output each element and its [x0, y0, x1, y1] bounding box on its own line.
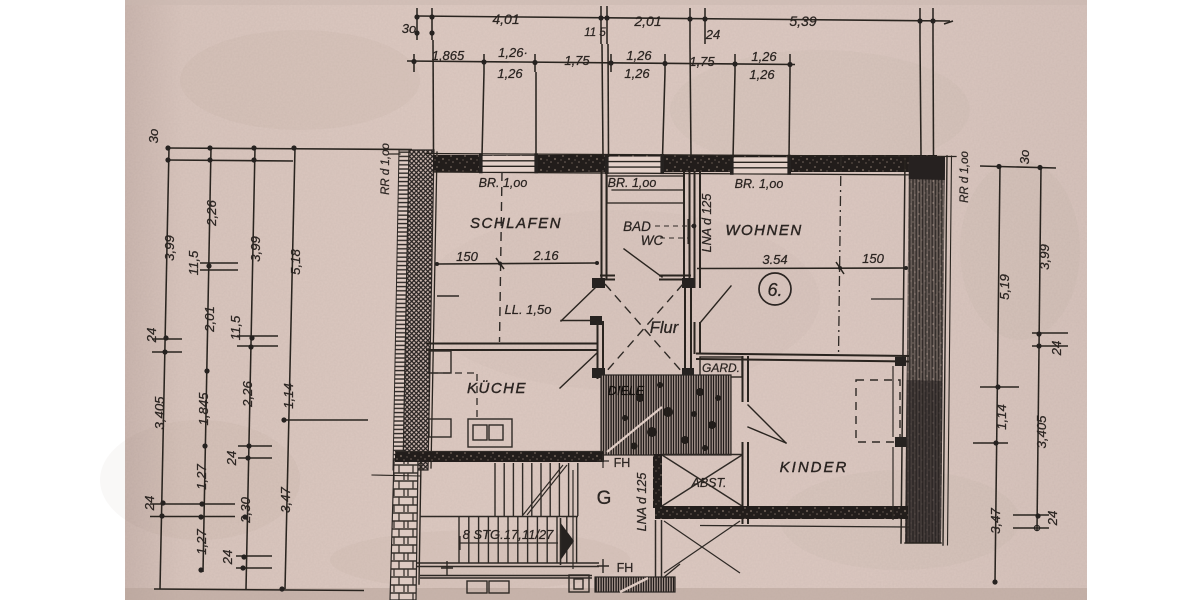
svg-text:4,01: 4,01: [492, 11, 519, 27]
svg-text:Flur: Flur: [650, 319, 680, 337]
svg-text:1,75: 1,75: [689, 54, 715, 69]
svg-text:11,5: 11,5: [228, 315, 243, 340]
svg-text:3o: 3o: [146, 129, 161, 144]
svg-text:3,47: 3,47: [278, 487, 293, 513]
svg-text:1,26: 1,26: [624, 66, 650, 81]
svg-text:FH: FH: [614, 456, 631, 470]
svg-text:1,26: 1,26: [626, 48, 652, 63]
svg-text:24: 24: [144, 328, 159, 344]
svg-text:3,405: 3,405: [1034, 415, 1049, 449]
svg-text:24: 24: [1045, 511, 1060, 527]
svg-text:5,19: 5,19: [997, 274, 1012, 300]
svg-text:1,26: 1,26: [751, 49, 777, 64]
svg-text:1,14: 1,14: [281, 383, 296, 409]
svg-text:5,39: 5,39: [789, 13, 816, 29]
svg-text:LL. 1,5o: LL. 1,5o: [505, 302, 552, 317]
svg-text:LNA d 125: LNA d 125: [635, 473, 649, 532]
svg-text:6.: 6.: [767, 280, 782, 300]
svg-text:1,26: 1,26: [749, 67, 775, 82]
svg-text:1,14: 1,14: [994, 404, 1009, 430]
svg-text:1,865: 1,865: [432, 48, 465, 63]
svg-text:RR d 1,oo: RR d 1,oo: [380, 143, 392, 195]
svg-text:3.54: 3.54: [762, 252, 787, 267]
svg-text:11 5: 11 5: [584, 27, 606, 39]
svg-text:2,26: 2,26: [240, 381, 255, 408]
svg-text:1,26: 1,26: [497, 66, 523, 81]
svg-text:3,405: 3,405: [152, 396, 167, 430]
svg-text:G: G: [597, 488, 612, 509]
svg-text:1,75: 1,75: [564, 53, 590, 68]
svg-text:24: 24: [224, 451, 239, 467]
svg-text:3,99: 3,99: [248, 236, 263, 262]
svg-text:KÜCHE: KÜCHE: [467, 379, 527, 397]
svg-text:5,18: 5,18: [288, 249, 303, 275]
svg-text:ABST.: ABST.: [691, 476, 727, 490]
svg-text:3,99: 3,99: [1037, 244, 1052, 270]
svg-text:2,26: 2,26: [204, 200, 219, 227]
svg-text:1,27: 1,27: [194, 529, 209, 555]
svg-text:FH: FH: [617, 561, 634, 575]
svg-text:3o: 3o: [1017, 150, 1032, 165]
svg-text:24: 24: [220, 550, 235, 566]
svg-text:3,99: 3,99: [162, 235, 177, 261]
svg-text:KINDER: KINDER: [780, 459, 849, 476]
svg-text:1,26·: 1,26·: [498, 45, 528, 60]
svg-text:RR d 1,oo: RR d 1,oo: [959, 151, 971, 203]
svg-text:BR. 1,oo: BR. 1,oo: [735, 177, 784, 191]
svg-text:2,01: 2,01: [202, 306, 217, 333]
svg-text:24: 24: [1049, 341, 1064, 357]
svg-text:DIELE: DIELE: [608, 384, 645, 398]
svg-text:GARD.: GARD.: [702, 361, 740, 375]
svg-text:150: 150: [456, 249, 478, 264]
svg-text:1,27: 1,27: [194, 464, 209, 490]
svg-text:150: 150: [862, 251, 884, 266]
svg-text:LNA d 125: LNA d 125: [700, 194, 714, 253]
svg-text:3o: 3o: [402, 21, 416, 36]
svg-text:8 STG.17,11/27: 8 STG.17,11/27: [463, 527, 555, 542]
svg-text:BR. 1,oo: BR. 1,oo: [479, 176, 528, 190]
svg-text:BAD: BAD: [623, 219, 651, 234]
svg-text:SCHLAFEN: SCHLAFEN: [470, 215, 562, 232]
svg-text:2,30: 2,30: [238, 497, 253, 524]
svg-text:11,5: 11,5: [186, 250, 201, 275]
svg-text:1,845: 1,845: [196, 392, 211, 426]
svg-text:3,47: 3,47: [988, 508, 1003, 534]
svg-text:2.16: 2.16: [532, 248, 559, 263]
svg-text:24: 24: [705, 27, 720, 42]
svg-text:2,01: 2,01: [633, 13, 661, 29]
svg-text:BR. 1,oo: BR. 1,oo: [608, 176, 657, 190]
svg-text:WC: WC: [641, 233, 664, 248]
svg-text:24: 24: [142, 496, 157, 512]
svg-text:WOHNEN: WOHNEN: [725, 222, 802, 239]
